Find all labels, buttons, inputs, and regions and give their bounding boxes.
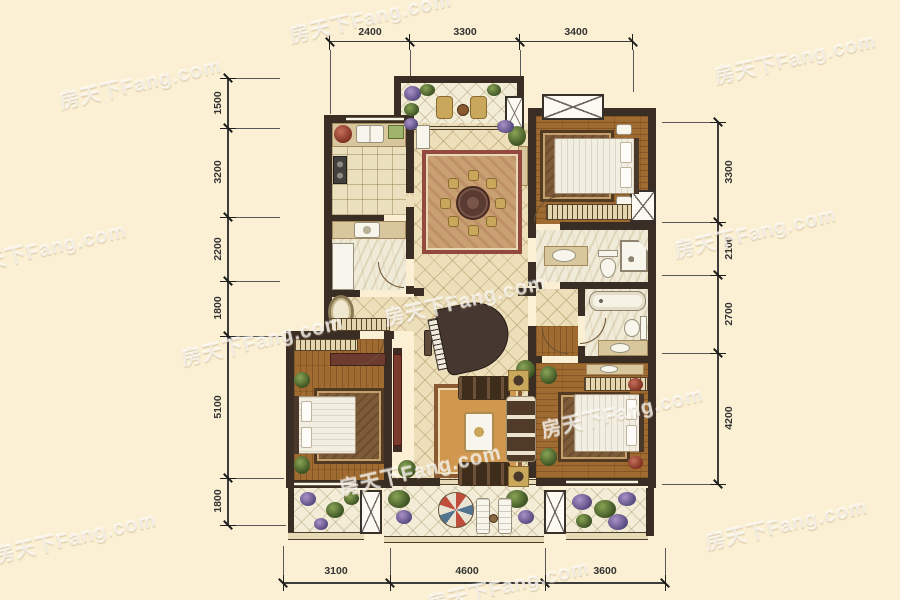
dresser-mirror (600, 365, 618, 373)
wall (560, 222, 656, 230)
wall (286, 331, 294, 488)
wall (406, 286, 414, 294)
toilet-bowl (624, 319, 640, 337)
extension-line (330, 50, 331, 114)
dining-chair (468, 170, 479, 181)
extension-line (662, 122, 710, 123)
console-bench (393, 354, 402, 446)
stove (333, 156, 347, 184)
extension-line (283, 546, 284, 575)
dining-chair (468, 225, 479, 236)
wall (528, 326, 536, 358)
plant (518, 510, 534, 524)
watermark: 房天下Fang.com (56, 49, 224, 114)
flowers (628, 378, 643, 391)
side-table (508, 466, 529, 487)
dim-label: 3400 (564, 27, 587, 38)
wall (406, 207, 414, 221)
wall (648, 108, 656, 488)
watermark: 房天下Fang.com (424, 551, 592, 600)
plant (300, 492, 316, 506)
wall (528, 230, 536, 238)
watermark: 房天下Fang.com (711, 24, 879, 89)
toilet-tank (640, 316, 647, 340)
watermark: 房天下Fang.com (671, 198, 839, 263)
plant (404, 103, 419, 116)
wall (324, 115, 332, 299)
headboard (294, 396, 299, 454)
balcony-chair (470, 96, 487, 119)
dining-chair (448, 178, 459, 189)
dim-label: 4200 (724, 406, 735, 429)
dimension-line (330, 41, 633, 42)
kitchen-sink (356, 125, 384, 143)
plant (404, 86, 421, 101)
laundry-cabinet (332, 243, 354, 290)
plant (420, 84, 435, 96)
dim-label: 3200 (213, 160, 224, 183)
wall (536, 356, 542, 363)
dining-chair (495, 198, 506, 209)
plant (404, 118, 418, 130)
bedroom-bottomright-window (566, 480, 638, 484)
extension-line (236, 128, 280, 129)
bath-sink (610, 343, 630, 353)
dim-label: 2200 (213, 237, 224, 260)
plant (608, 514, 628, 530)
plant (497, 120, 514, 133)
dining-chair (448, 216, 459, 227)
wall (560, 282, 652, 289)
side-table (508, 370, 529, 391)
extension-line (662, 222, 710, 223)
wall (646, 488, 654, 536)
plant (540, 448, 557, 466)
pillow (301, 427, 312, 448)
ac-platform-right (630, 190, 656, 222)
plant (388, 490, 410, 508)
dim-label: 3600 (593, 566, 616, 577)
pillow (626, 425, 637, 446)
extension-line (236, 217, 280, 218)
headboard (634, 138, 639, 194)
pillow (301, 401, 312, 422)
plant (326, 502, 344, 518)
extension-line (236, 78, 280, 79)
dining-cabinet (416, 125, 430, 149)
dimension-line (227, 78, 228, 525)
extension-line (236, 281, 280, 282)
wall (288, 488, 294, 536)
extension-line (662, 353, 710, 354)
balcony-wall (384, 536, 544, 543)
loveseat (458, 376, 510, 400)
pillow (620, 167, 632, 188)
dining-chair (486, 216, 497, 227)
floor-plan-canvas: 2400 3300 3400 1500 3200 2200 1800 5100 … (0, 0, 900, 600)
lounger (498, 498, 512, 534)
dim-label: 5100 (213, 395, 224, 418)
dining-chair (486, 178, 497, 189)
wall (578, 286, 585, 316)
plant (396, 510, 412, 524)
dim-label: 2700 (724, 302, 735, 325)
plant (576, 514, 592, 528)
bedroom-topright-window-box (542, 94, 604, 120)
extension-line (236, 478, 284, 479)
extension-line (410, 50, 411, 76)
dim-label: 4600 (455, 566, 478, 577)
bath-sink (552, 249, 576, 262)
plant (294, 372, 310, 388)
plant (540, 366, 557, 384)
wall (406, 221, 414, 259)
plant (572, 494, 592, 510)
extension-line (662, 484, 710, 485)
dimension-line (717, 122, 718, 484)
extension-line (662, 275, 710, 276)
wall (578, 356, 656, 363)
dim-label: 3300 (724, 160, 735, 183)
toilet-tank (598, 250, 618, 257)
lounger-table (489, 514, 498, 523)
dining-table (456, 186, 490, 220)
watermark: 房天下Fang.com (702, 490, 870, 555)
kitchen-window (346, 117, 404, 121)
dim-label: 3300 (453, 27, 476, 38)
pillow (620, 142, 632, 163)
wall (394, 76, 524, 83)
dining-chair (440, 198, 451, 209)
plant (314, 518, 328, 530)
kitchen-plant (334, 125, 352, 143)
dim-label: 1800 (213, 489, 224, 512)
shaft-bottomright (544, 490, 566, 534)
balcony-wall (566, 532, 648, 540)
dim-label: 1500 (213, 91, 224, 114)
extension-line (665, 548, 666, 575)
extension-line (236, 525, 286, 526)
sofa (506, 396, 536, 462)
dim-label: 3100 (324, 566, 347, 577)
watermark: 房天下Fang.com (0, 503, 159, 568)
watermark: 房天下Fang.com (0, 214, 129, 279)
washer (354, 222, 380, 238)
balcony-wall (288, 532, 364, 540)
plant (618, 492, 636, 506)
nightstand (616, 124, 632, 135)
extension-line (390, 548, 391, 575)
extension-line (520, 50, 521, 76)
extension-line (633, 50, 634, 92)
balcony-chair (436, 96, 453, 119)
flowers (628, 456, 643, 469)
balcony-table (457, 104, 469, 116)
plant (294, 456, 310, 474)
parasol (438, 492, 474, 528)
plant (487, 84, 501, 96)
lounger (476, 498, 490, 534)
kitchen-doorway-floor (406, 193, 414, 207)
wall (528, 222, 534, 230)
cutting-board (388, 125, 404, 139)
bathtub (589, 291, 646, 311)
dim-label: 1800 (213, 296, 224, 319)
